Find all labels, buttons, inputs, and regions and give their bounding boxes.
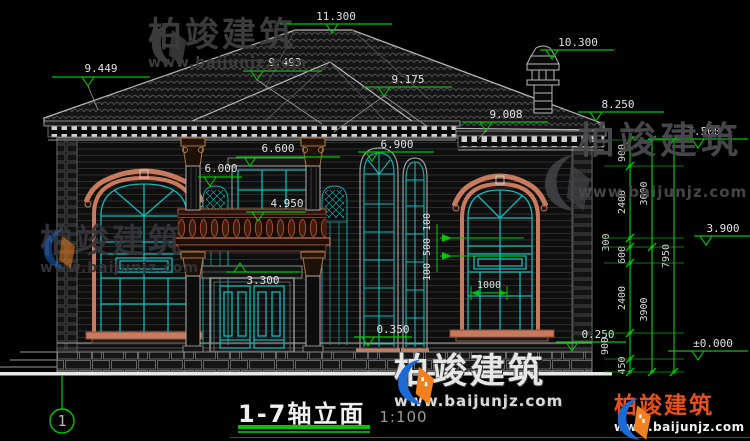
- level-value: 9.008: [489, 108, 522, 121]
- level-value: 3.900: [706, 222, 739, 235]
- cornice-right: [456, 131, 606, 150]
- level-value: ±0.000: [693, 337, 733, 350]
- title-underline-thick: [238, 425, 370, 429]
- level-marker: 3.900: [694, 222, 750, 245]
- level-value: 4.950: [270, 197, 303, 210]
- level-value: 9.493: [268, 56, 301, 69]
- level-value: 9.175: [391, 73, 424, 86]
- chain-dim-value: 2400: [617, 190, 628, 214]
- balcony: [174, 209, 330, 251]
- level-marker: ±0.000: [668, 337, 748, 360]
- ground-line: [0, 372, 612, 376]
- level-value: 11.300: [316, 10, 356, 23]
- dimension-chain: 7950: [661, 136, 678, 376]
- balustrade: [178, 214, 326, 238]
- elevation-drawing-canvas: 1 11.30010.3009.4499.4939.1759.0088.2507…: [0, 0, 750, 441]
- elevation-drawing-svg: 1 11.30010.3009.4499.4939.1759.0088.2507…: [0, 0, 750, 441]
- chain-dim-value: 300: [601, 233, 612, 251]
- dimension-chain: 90024003006002400900450: [600, 136, 634, 376]
- chain-dim-value: 3600: [639, 181, 650, 205]
- chain-dim-value: 900: [617, 144, 628, 162]
- axis-bubble-label: 1: [57, 412, 66, 430]
- band-dim-value: 100: [422, 213, 433, 231]
- chain-dim-value: 7950: [661, 244, 672, 268]
- level-value: 0.350: [376, 323, 409, 336]
- drawing-title-block: 1-7轴立面 1:100: [238, 394, 428, 429]
- level-value: 6.600: [261, 142, 294, 155]
- level-value: 6.000: [204, 162, 237, 175]
- stone-base: [0, 352, 612, 376]
- level-value: 6.900: [380, 138, 413, 151]
- level-value: 3.300: [246, 274, 279, 287]
- drawing-title: 1-7轴立面: [238, 394, 365, 429]
- level-value: 10.300: [558, 36, 598, 49]
- level-value: 8.250: [601, 98, 634, 111]
- level-marker: 7.500: [648, 125, 748, 148]
- chain-dim-value: 3900: [639, 297, 650, 321]
- band-dim-value: 100: [422, 263, 433, 281]
- window-width-value: 1000: [477, 280, 501, 291]
- axis-grid-1: 1: [50, 375, 74, 433]
- band-dim-value: 500: [422, 238, 433, 256]
- drawing-scale: 1:100: [379, 408, 427, 426]
- dimension-chain: 36003900: [639, 136, 656, 376]
- level-value: 7.500: [687, 125, 720, 138]
- window-sill: [450, 330, 554, 337]
- level-value: 9.449: [84, 62, 117, 75]
- baijun-logo-icon: [540, 150, 602, 216]
- title-underline-thin: [238, 431, 370, 433]
- window-sill: [86, 332, 202, 339]
- chain-dim-value: 600: [617, 246, 628, 264]
- chain-dim-value: 900: [600, 337, 611, 355]
- chain-dim-value: 2400: [617, 286, 628, 310]
- corner-pilaster-left: [57, 140, 77, 352]
